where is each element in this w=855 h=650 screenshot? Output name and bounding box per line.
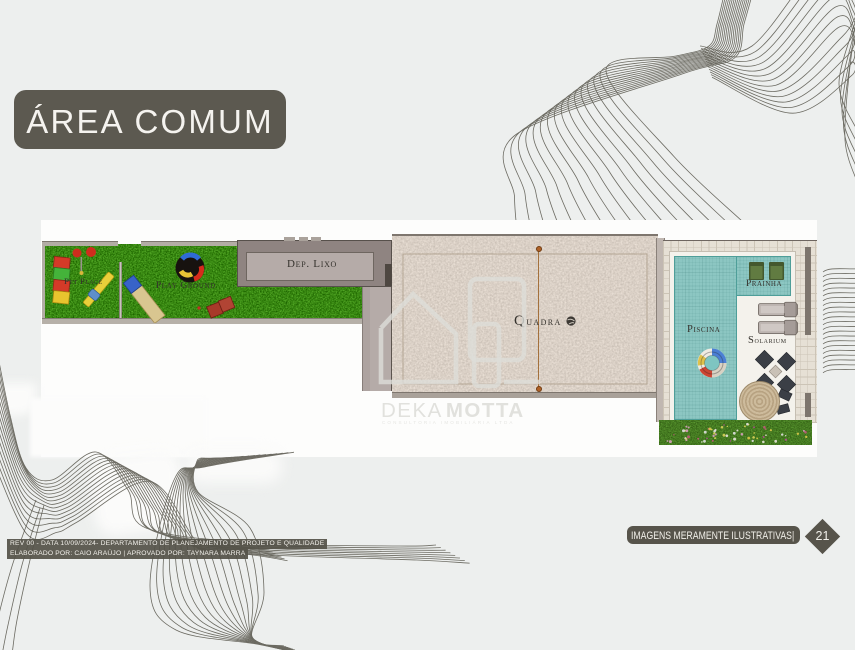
svg-text:DEKAMOTTA: DEKAMOTTA bbox=[381, 399, 525, 422]
svg-text:CONSULTORIA IMOBILIÁRIA LTDA: CONSULTORIA IMOBILIÁRIA LTDA bbox=[382, 419, 515, 425]
